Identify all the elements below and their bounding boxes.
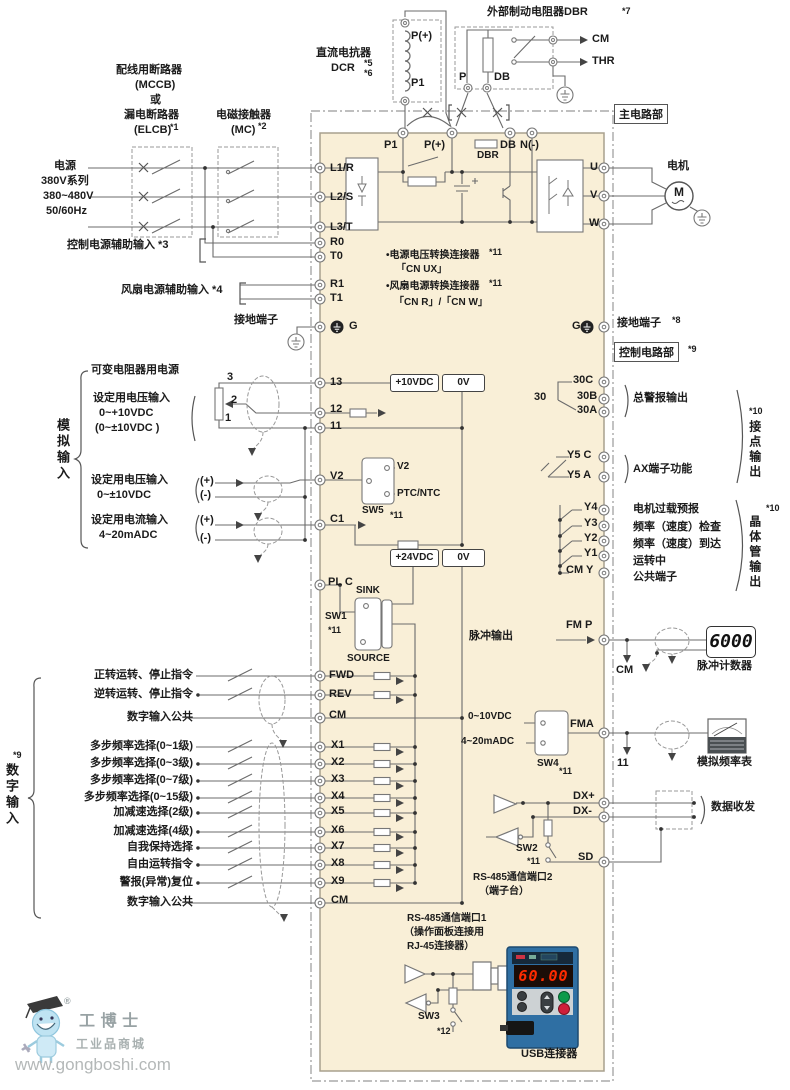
cn-fan-line2: 「CN R」/「CN W」 (394, 297, 488, 309)
running-label: 运转中 (633, 555, 666, 568)
terminal-W: W (589, 217, 599, 230)
note-10b: *10 (766, 503, 780, 513)
motor-label: 电机 (667, 160, 689, 173)
terminal-FMP: FM P (566, 619, 592, 632)
terminal-T0: T0 (330, 250, 343, 263)
mccb-abbr: (MCCB) (135, 79, 175, 92)
ax-function-label: AX端子功能 (633, 463, 692, 476)
sw1-label: SW1 (325, 611, 347, 623)
ground-terminal-icon (331, 321, 344, 334)
terminal-Y3: Y3 (584, 517, 597, 530)
terminal-X3: X3 (331, 773, 344, 786)
curr-input-range: 4~20mADC (99, 529, 157, 542)
earth-icon (694, 210, 710, 226)
terminal-C1: C1 (330, 513, 344, 526)
curr-input-label: 设定用电流输入 (91, 514, 168, 527)
note-6: *6 (364, 68, 373, 78)
ground-terminal-label-right: 接地端子 (617, 317, 661, 330)
rs485-port1-sub1: （操作面板连接用 (404, 927, 484, 939)
dcr-name: DCR (331, 62, 355, 75)
di-x7-label: 自我保持选择 (3, 841, 193, 854)
note-2: *2 (258, 121, 267, 131)
terminal-R1: R1 (330, 278, 344, 291)
power-series: 380V系列 (41, 175, 89, 188)
analog-input-group: 模拟输入 (54, 418, 69, 482)
note-5: *5 (364, 58, 373, 68)
terminal-U: U (590, 161, 598, 174)
pot-pin3: 3 (227, 371, 233, 384)
plus10vdc-box: +10VDC (390, 374, 439, 392)
rs485-port1-sub2: RJ-45连接器） (407, 941, 474, 953)
note-1: *1 (170, 122, 179, 132)
terminal-FMA: FMA (570, 718, 594, 731)
run-button-icon (559, 992, 570, 1003)
reactor-coil-icon (405, 31, 410, 91)
terminal-11-return-label: 11 (617, 757, 629, 770)
sw5-note: *11 (390, 510, 403, 520)
volt-input2-range: 0~±10VDC (97, 489, 151, 502)
terminal-X4: X4 (331, 790, 344, 803)
di-x9-label: 警报(异常)复位 (3, 876, 193, 889)
terminal-V: V (590, 189, 597, 202)
rs485-port1-label: RS-485通信端口1 (407, 913, 486, 925)
terminal-X8: X8 (331, 857, 344, 870)
sw3-note: *12 (437, 1026, 451, 1036)
cn-ux-note: *11 (489, 247, 502, 257)
di-cm-label: 数字输入公共 (3, 711, 193, 724)
logo-name: 工 博 士 (79, 1012, 138, 1030)
sw5-option-ptc: PTC/NTC (397, 488, 440, 500)
rs485-port2-label: RS-485通信端口2 (473, 872, 552, 884)
freq-check-label: 频率（速度）检查 (633, 521, 721, 534)
terminal-11: 11 (330, 420, 342, 433)
terminal-CMY: CM Y (566, 564, 593, 577)
volt-input2-minus: (-) (200, 489, 211, 502)
dbr-cm: CM (592, 33, 609, 46)
di-cm2-label: 数字输入公共 (3, 896, 193, 909)
terminal-X1: X1 (331, 739, 344, 752)
dbr-title: 外部制动电阻器DBR (487, 6, 588, 19)
mc-title: 电磁接触器 (216, 109, 271, 122)
aux-power-input-label: 控制电源辅助输入 *3 (67, 239, 168, 252)
wiring-diagram-page: 配线用断路器 (MCCB) 或 漏电断路器 (ELCB) *1 电磁接触器 (M… (0, 0, 790, 1090)
analog-meter-icon (708, 719, 746, 753)
terminal-X5: X5 (331, 805, 344, 818)
logo-reg-mark: ® (64, 996, 71, 1006)
data-txrx-label: 数据收发 (711, 801, 755, 814)
terminal-SD: SD (578, 851, 593, 864)
note-8: *8 (672, 315, 681, 325)
dcr-p1: P1 (411, 77, 424, 90)
sw4-input-v: 0~10VDC (468, 711, 512, 723)
logo-subtitle: 工业品商城 (76, 1038, 146, 1052)
terminal-30B: 30B (577, 390, 597, 403)
elcb-title: 漏电断路器 (124, 109, 179, 122)
terminal-G-left: G (349, 320, 358, 333)
zero-v-box1: 0V (442, 374, 485, 392)
di-rev-label: 逆转运转、停止指令 (3, 688, 193, 701)
di-x8-label: 自由运转指令 (3, 858, 193, 871)
di-x6-label: 加减速选择(4级) (3, 825, 193, 838)
di-x4-label: 多步频率选择(0~15级) (3, 791, 193, 804)
note-7: *7 (622, 6, 631, 16)
terminal-13: 13 (330, 376, 342, 389)
sw2-label: SW2 (516, 843, 538, 855)
terminal-Y1: Y1 (584, 547, 597, 560)
terminal-REV: REV (329, 688, 352, 701)
earth-icon (288, 334, 304, 350)
dcr-p-plus: P(+) (411, 30, 432, 43)
mc-abbr: (MC) (231, 124, 255, 137)
motor-m: M (674, 186, 684, 200)
usb-plug-icon (506, 1021, 534, 1035)
control-circuit-tag: 控制电路部 (614, 342, 679, 362)
terminal-DXminus: DX- (573, 805, 592, 818)
volt-input1-label: 设定用电压输入 (93, 392, 170, 405)
elcb-abbr: (ELCB) (134, 124, 171, 137)
terminal-12: 12 (330, 403, 342, 416)
mccb-title: 配线用断路器 (116, 64, 182, 77)
or-label: 或 (150, 94, 161, 107)
terminal-Y5C: Y5 C (567, 449, 591, 462)
terminal-30A: 30A (577, 404, 597, 417)
terminal-DB: DB (500, 139, 516, 152)
terminal-P1: P1 (384, 139, 397, 152)
terminal-X6: X6 (331, 824, 344, 837)
pulse-counter-label: 脉冲计数器 (697, 660, 752, 673)
rs485-port2-sub: （端子台） (479, 886, 529, 898)
di-x2-label: 多步频率选择(0~3级) (3, 757, 193, 770)
ground-terminal-label-left: 接地端子 (234, 314, 278, 327)
sink-label: SINK (356, 585, 380, 597)
power-voltage: 380~480V (43, 190, 93, 203)
earth-icon (557, 87, 573, 103)
keypad-icon (500, 947, 578, 1048)
terminal-G-right: G (572, 320, 581, 333)
stop-button-icon (559, 1004, 570, 1015)
cn-ux-line2: 「CN UX」 (396, 264, 447, 276)
zero-v-box2: 0V (442, 549, 485, 567)
terminal-Y4: Y4 (584, 501, 597, 514)
analog-freq-meter-label: 模拟频率表 (697, 756, 752, 769)
alarm-output-label: 总警报输出 (633, 392, 688, 405)
sw3-label: SW3 (418, 1011, 440, 1023)
terminal-X7: X7 (331, 840, 344, 853)
terminal-L1R: L1/R (330, 162, 354, 175)
cm-return-label: CM (616, 664, 633, 677)
di-x3-label: 多步频率选择(0~7级) (3, 774, 193, 787)
terminal-PLC: PL C (328, 576, 353, 589)
terminal-30C: 30C (573, 374, 593, 387)
terminal-X9: X9 (331, 875, 344, 888)
logo-url: www.gongboshi.com (15, 1055, 171, 1075)
terminal-V2: V2 (330, 470, 343, 483)
plus24vdc-box: +24VDC (390, 549, 439, 567)
sw1-note: *11 (328, 625, 341, 635)
terminal-T1: T1 (330, 292, 343, 305)
volt-input2-plus: (+) (200, 475, 214, 488)
varres-label: 可变电阻器用电源 (91, 364, 179, 377)
volt-input2-label: 设定用电压输入 (91, 474, 168, 487)
power-freq: 50/60Hz (46, 205, 87, 218)
di-x1-label: 多步频率选择(0~1级) (3, 740, 193, 753)
terminal-CM2: CM (331, 894, 348, 907)
terminal-L3T: L3/T (330, 221, 353, 234)
pulse-counter-display: 6000 (706, 626, 756, 658)
terminal-Pplus: P(+) (424, 139, 445, 152)
terminal-FWD: FWD (329, 669, 354, 682)
volt-input1-range2: (0~±10VDC ) (95, 422, 159, 435)
di-fwd-label: 正转运转、停止指令 (3, 669, 193, 682)
note-9b: *9 (688, 344, 697, 354)
sw5-label: SW5 (362, 505, 384, 517)
di-x5-label: 加减速选择(2级) (3, 806, 193, 819)
shield-box (656, 791, 692, 829)
fan-power-input-label: 风扇电源辅助输入 *4 (121, 284, 222, 297)
sw4-note: *11 (559, 766, 572, 776)
pot-pin2: 2 (231, 394, 237, 407)
power-label: 电源 (54, 160, 76, 173)
common-terminal-label: 公共端子 (633, 571, 677, 584)
sw2-note: *11 (527, 856, 540, 866)
cn-fan-note: *11 (489, 278, 502, 288)
cn-fan-line1: •风扇电源转换连接器 (386, 281, 480, 293)
rj45-connector-icon (473, 962, 491, 990)
dbr-p: P (459, 71, 466, 84)
terminal-DXplus: DX+ (573, 790, 595, 803)
sw4-input-i: 4~20mADC (461, 736, 514, 748)
keypad-display: 60.00 (514, 965, 573, 987)
transistor-output-group: 晶体管输出 (747, 515, 761, 590)
dbr-db: DB (494, 71, 510, 84)
terminal-Y2: Y2 (584, 532, 597, 545)
terminal-X2: X2 (331, 756, 344, 769)
curr-input-plus: (+) (200, 514, 214, 527)
pulse-output-label: 脉冲输出 (469, 630, 513, 643)
sw5-option-v2: V2 (397, 461, 409, 473)
curr-input-minus: (-) (200, 532, 211, 545)
terminal-R0: R0 (330, 236, 344, 249)
freq-arrival-label: 频率（速度）到达 (633, 538, 721, 551)
dcr-title: 直流电抗器 (316, 47, 371, 60)
source-label: SOURCE (347, 653, 390, 665)
usb-connector-label: USB连接器 (521, 1048, 577, 1061)
note-10a: *10 (749, 406, 763, 416)
main-circuit-tag: 主电路部 (614, 104, 668, 124)
dbr-internal-label: DBR (477, 150, 499, 162)
pot-pin1: 1 (225, 412, 231, 425)
ground-terminal-icon (581, 321, 594, 334)
volt-input1-range: 0~+10VDC (99, 407, 153, 420)
contact-output-group: 接点输出 (747, 420, 761, 480)
dbr-thr: THR (592, 55, 615, 68)
cn-ux-line1: •电源电压转换连接器 (386, 250, 480, 262)
terminal-Nminus: N(-) (520, 139, 539, 152)
gongboshi-mascot-icon (22, 996, 64, 1063)
terminal-Y5A: Y5 A (567, 469, 591, 482)
terminal-L2S: L2/S (330, 191, 353, 204)
relay-30: 30 (534, 391, 546, 404)
terminal-CM: CM (329, 709, 346, 722)
overload-warning-label: 电机过载预报 (633, 503, 699, 516)
sw4-label: SW4 (537, 758, 559, 770)
